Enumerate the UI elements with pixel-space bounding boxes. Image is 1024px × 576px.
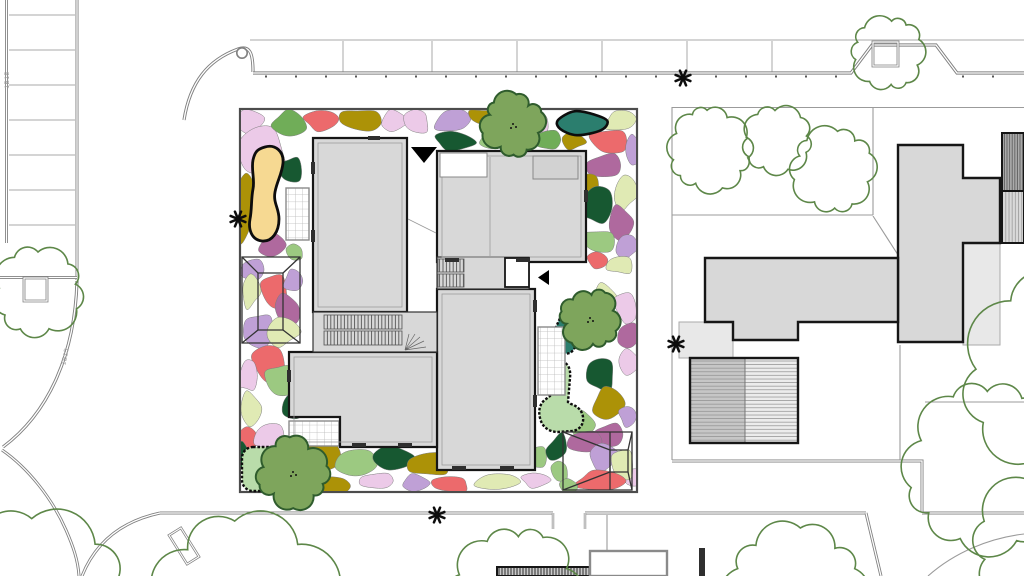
site-plan-canvas: 1B15 1B15 [0, 0, 1024, 576]
existing-tree-icon [789, 126, 877, 212]
proposed-tree-icon [560, 290, 621, 350]
existing-tree-icon [851, 16, 926, 90]
bottom-building-outline [590, 551, 667, 576]
asterisk-marker [430, 508, 445, 523]
window-tick [287, 370, 291, 382]
stair-run [438, 274, 464, 287]
stair-run [324, 331, 402, 345]
window-tick [516, 258, 530, 262]
manhole-icon [237, 48, 247, 58]
window-tick [368, 136, 380, 140]
neighbor-house-wing [705, 258, 898, 340]
window-tick [398, 443, 412, 447]
window-tick [500, 466, 514, 470]
existing-tree-icon [667, 107, 754, 194]
existing-tree-icon [901, 383, 1024, 556]
neighbor-terrace-deck [690, 358, 798, 443]
window-tick [452, 466, 466, 470]
building-block-c [437, 289, 535, 470]
road-label: 1B15 [60, 348, 70, 366]
stair-run [324, 315, 402, 329]
entry-recess [440, 153, 487, 177]
street-bench [169, 528, 199, 564]
existing-tree-icon [973, 456, 1024, 576]
existing-tree-icon [0, 509, 139, 576]
existing-tree-icon [0, 247, 84, 338]
window-tick [533, 395, 537, 407]
window-tick [352, 443, 366, 447]
road-label: 1B15 [4, 71, 11, 88]
building-block-a [313, 138, 407, 312]
planting-pebble [626, 134, 642, 165]
paved-grid-terrace [538, 327, 565, 395]
window-tick [311, 162, 315, 174]
paved-grid-terrace [286, 188, 309, 240]
window-tick [311, 230, 315, 242]
stair-core [505, 258, 529, 287]
neighbor-roof-hatch [1002, 191, 1024, 243]
neighbor-annex [963, 243, 1000, 345]
neighbor-annex [679, 322, 733, 358]
window-tick [445, 258, 459, 262]
existing-tree-icon [720, 521, 869, 576]
site-plan-page: 1B15 1B15 [0, 0, 1024, 576]
existing-tree-icon [148, 511, 342, 576]
neighbor-roof-hatch [1002, 133, 1024, 191]
existing-tree-icon [743, 106, 812, 176]
project-plot [236, 91, 643, 510]
window-tick [584, 190, 588, 202]
wall-segment [699, 548, 705, 576]
window-tick [533, 300, 537, 312]
